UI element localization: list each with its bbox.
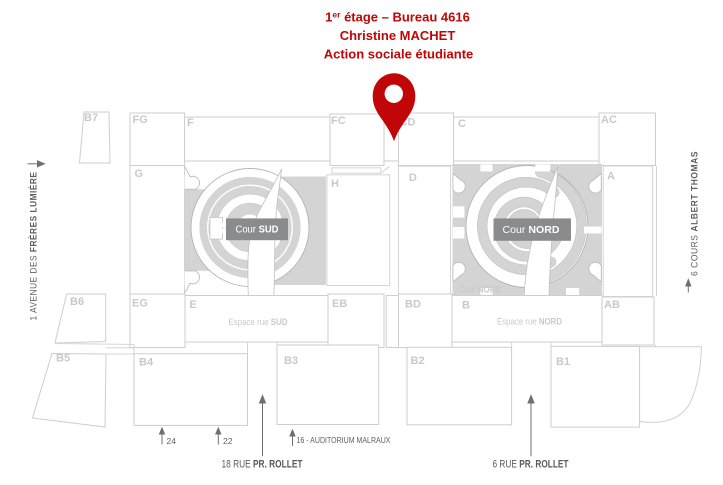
svg-text:Cour NORD: Cour NORD [459,285,501,296]
svg-text:B: B [462,300,470,312]
svg-text:G: G [135,168,144,180]
svg-text:24: 24 [167,436,177,446]
svg-text:6 COURS ALBERT THOMAS: 6 COURS ALBERT THOMAS [690,151,701,276]
svg-text:A: A [607,171,615,183]
svg-text:1 AVENUE DES FRÈRES LUMIÈRE: 1 AVENUE DES FRÈRES LUMIÈRE [29,172,40,321]
svg-text:Cour SUD: Cour SUD [236,225,279,236]
svg-text:C: C [458,118,466,130]
svg-text:E: E [190,299,197,311]
svg-text:AC: AC [601,114,617,126]
svg-text:EB: EB [332,298,347,310]
svg-text:AB: AB [604,299,620,311]
svg-text:Action sociale étudiante: Action sociale étudiante [324,47,474,62]
svg-text:H: H [331,178,339,190]
svg-text:B7: B7 [84,112,98,124]
svg-text:F: F [187,117,194,129]
svg-text:BD: BD [405,299,421,311]
svg-text:B4: B4 [139,356,154,368]
svg-text:1er étage – Bureau 4616: 1er étage – Bureau 4616 [325,10,470,25]
svg-text:6 RUE PR. ROLLET: 6 RUE PR. ROLLET [493,459,569,471]
svg-text:22: 22 [223,436,233,446]
svg-text:FG: FG [133,114,148,126]
svg-text:FC: FC [331,115,346,127]
svg-text:EG: EG [132,298,148,310]
svg-text:16 - AUDITORIUM MALRAUX: 16 - AUDITORIUM MALRAUX [297,436,392,445]
svg-text:B5: B5 [56,353,70,365]
svg-text:Espace rue SUD: Espace rue SUD [229,317,288,327]
svg-text:B2: B2 [411,355,425,367]
svg-text:Espace rue NORD: Espace rue NORD [497,317,562,327]
svg-text:D: D [409,172,417,184]
svg-text:Christine MACHET: Christine MACHET [340,28,456,43]
svg-text:B1: B1 [556,356,570,368]
svg-text:Cour NORD: Cour NORD [503,225,560,236]
svg-text:B3: B3 [284,355,298,367]
svg-text:18 RUE PR. ROLLET: 18 RUE PR. ROLLET [222,459,303,471]
svg-text:B6: B6 [70,296,84,308]
